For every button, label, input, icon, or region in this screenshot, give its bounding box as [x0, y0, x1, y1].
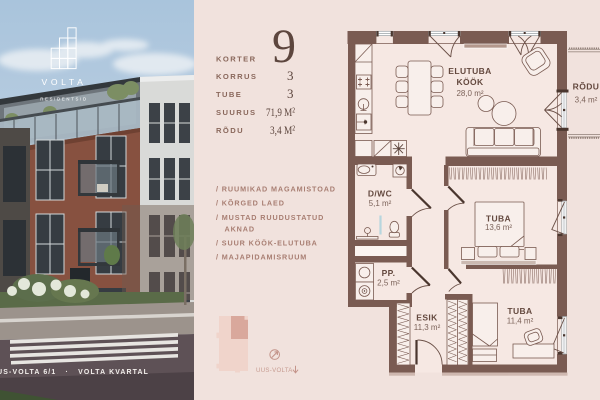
svg-text:RÕDU: RÕDU [573, 82, 600, 92]
svg-text:UUS-VOLTA: UUS-VOLTA [256, 367, 293, 374]
svg-text:9: 9 [272, 20, 296, 73]
svg-text:AKNAD: AKNAD [225, 225, 255, 234]
svg-text:UUS-VOLTA 6/1 · VOLTA KVAR: UUS-VOLTA 6/1 · VOLTA KVARTAL [0, 369, 149, 376]
svg-text:TUBE: TUBE [216, 90, 242, 99]
svg-text:3: 3 [287, 86, 294, 101]
svg-text:3,4 M²: 3,4 M² [270, 123, 295, 137]
svg-text:/ MUSTAD RUUDUSTATUD: / MUSTAD RUUDUSTATUD [216, 213, 324, 222]
svg-text:VOLTA: VOLTA [42, 77, 87, 87]
svg-text:3: 3 [287, 68, 294, 83]
svg-text:SUURUS: SUURUS [216, 108, 256, 117]
svg-text:/ RUUMIKAD MAGAMISTOAD: / RUUMIKAD MAGAMISTOAD [216, 185, 336, 194]
svg-text:D/WC: D/WC [368, 189, 392, 199]
svg-text:11,3 m²: 11,3 m² [414, 323, 441, 332]
svg-text:2,5 m²: 2,5 m² [377, 279, 400, 288]
svg-text:11,4 m²: 11,4 m² [507, 317, 534, 326]
svg-text:28,0 m²: 28,0 m² [456, 89, 483, 98]
svg-text:71,9 M²: 71,9 M² [266, 105, 295, 119]
svg-text:RESIDENTSID: RESIDENTSID [40, 97, 88, 102]
svg-text:KÖÖK: KÖÖK [456, 77, 484, 87]
svg-text:KORRUS: KORRUS [216, 72, 257, 81]
svg-text:3,4 m²: 3,4 m² [575, 96, 598, 105]
svg-text:TUBA: TUBA [486, 214, 511, 224]
svg-text:ESIK: ESIK [416, 313, 438, 323]
svg-text:/ MAJAPIDAMISRUUM: / MAJAPIDAMISRUUM [216, 253, 307, 262]
svg-text:PP.: PP. [382, 268, 396, 278]
svg-text:RÕDU: RÕDU [216, 126, 244, 135]
svg-text:/ SUUR KÖÖK-ELUTUBA: / SUUR KÖÖK-ELUTUBA [216, 239, 318, 248]
svg-text:13,6 m²: 13,6 m² [485, 223, 512, 232]
svg-text:KORTER: KORTER [216, 55, 256, 64]
svg-text:TUBA: TUBA [507, 306, 532, 316]
svg-text:ELUTUBA: ELUTUBA [448, 66, 491, 76]
svg-text:5,1 m²: 5,1 m² [369, 199, 392, 208]
svg-text:/ KÕRGED LAED: / KÕRGED LAED [216, 199, 285, 208]
